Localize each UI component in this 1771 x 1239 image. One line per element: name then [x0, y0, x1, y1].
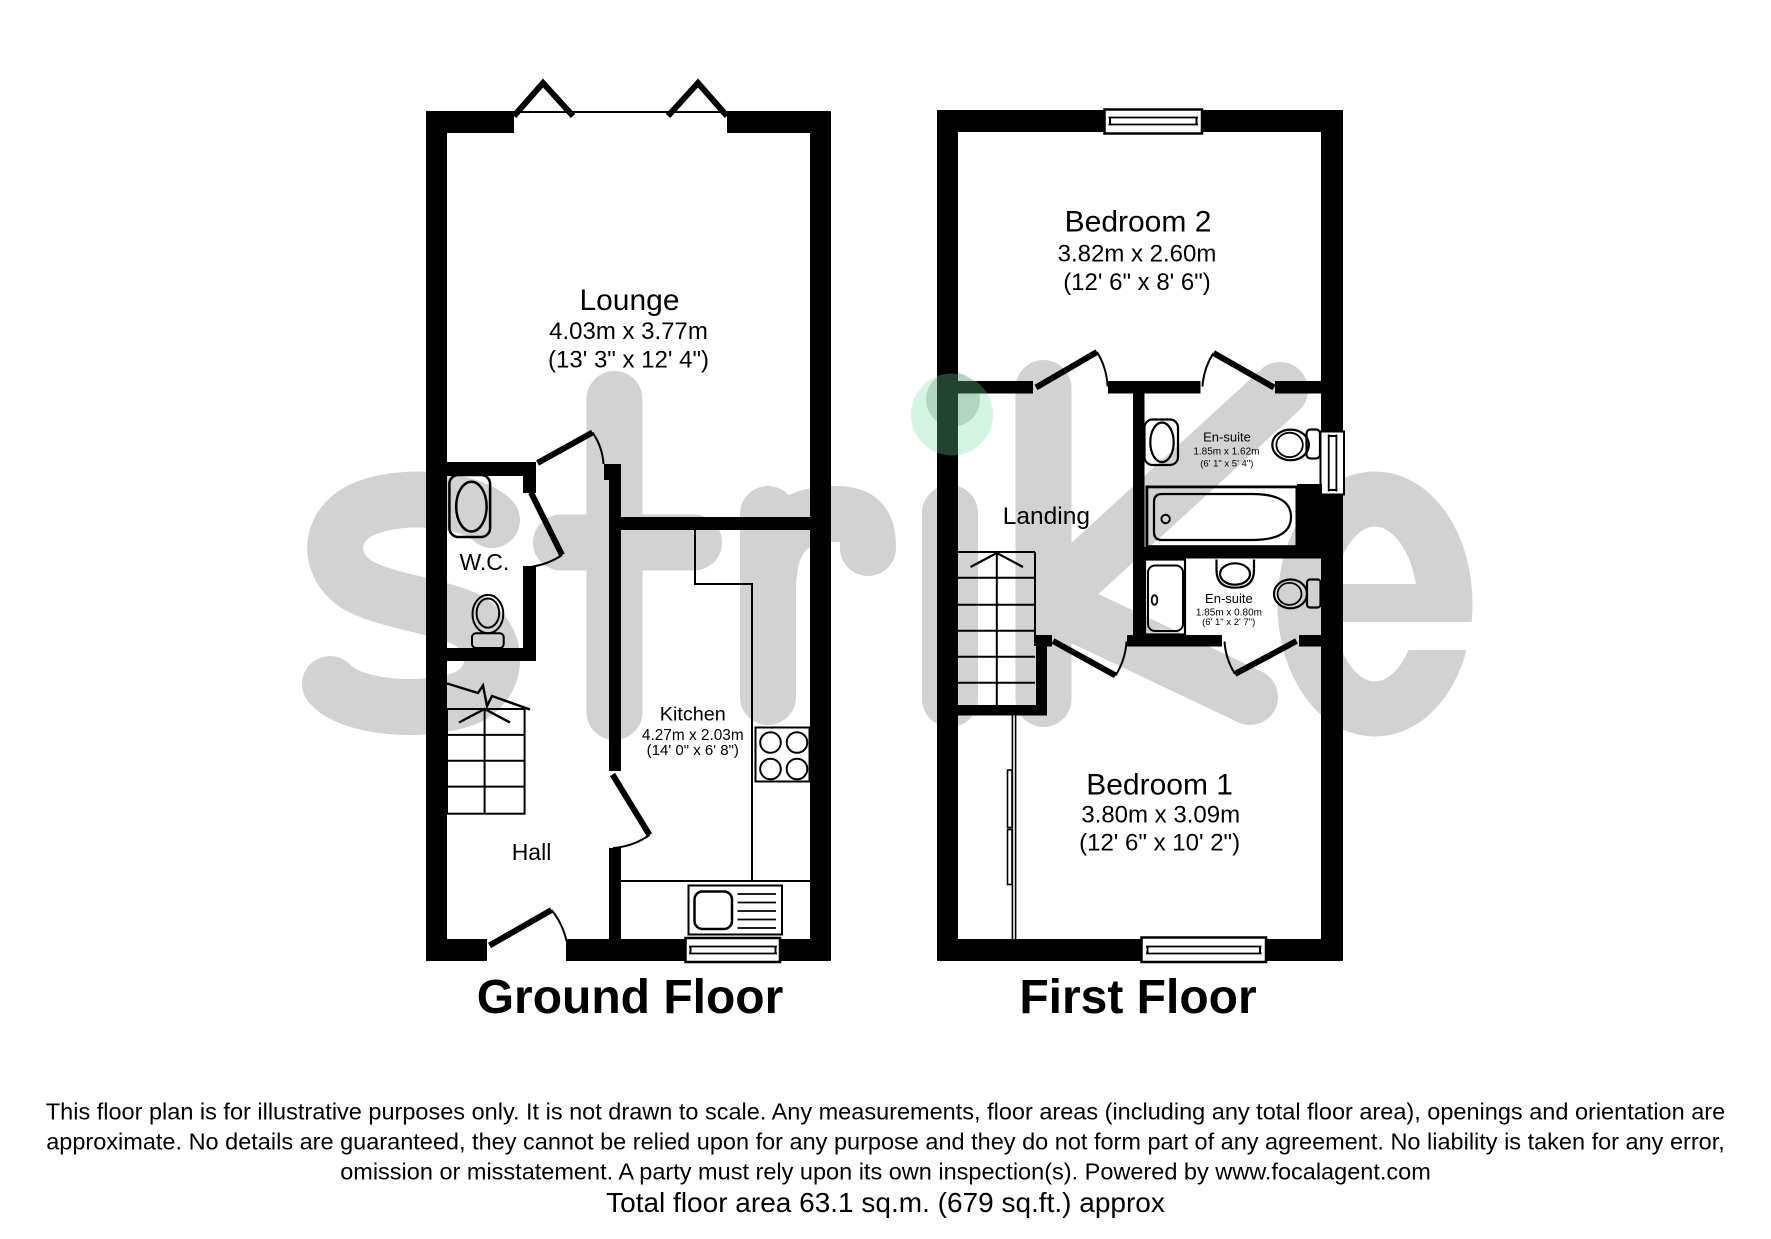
- svg-text:First Floor: First Floor: [1019, 971, 1256, 1024]
- svg-text:3.80m x 3.09m: 3.80m x 3.09m: [1081, 802, 1240, 829]
- svg-text:4.03m x 3.77m: 4.03m x 3.77m: [549, 318, 708, 345]
- svg-text:Lounge: Lounge: [579, 284, 679, 317]
- svg-text:Ground Floor: Ground Floor: [477, 971, 784, 1024]
- svg-text:(6' 1" x 2' 7"): (6' 1" x 2' 7"): [1202, 617, 1255, 628]
- svg-text:This floor plan is for illustr: This floor plan is for illustrative purp…: [46, 1099, 1725, 1125]
- svg-text:Total floor area 63.1 sq.m. (6: Total floor area 63.1 sq.m. (679 sq.ft.)…: [606, 1187, 1165, 1218]
- svg-text:(6' 1" x 5' 4"): (6' 1" x 5' 4"): [1200, 459, 1253, 470]
- svg-text:(13' 3" x 12' 4"): (13' 3" x 12' 4"): [548, 347, 709, 374]
- svg-text:approximate. No details are gu: approximate. No details are guaranteed, …: [46, 1129, 1725, 1155]
- svg-text:En-suite: En-suite: [1203, 430, 1251, 445]
- svg-text:En-suite: En-suite: [1205, 591, 1253, 606]
- svg-text:3.82m x 2.60m: 3.82m x 2.60m: [1058, 241, 1217, 268]
- svg-text:Hall: Hall: [512, 839, 552, 865]
- svg-text:Bedroom 1: Bedroom 1: [1086, 769, 1233, 802]
- svg-text:Kitchen: Kitchen: [660, 704, 726, 726]
- svg-text:(12' 6" x 10' 2"): (12' 6" x 10' 2"): [1079, 830, 1240, 857]
- svg-text:Bedroom 2: Bedroom 2: [1065, 206, 1212, 239]
- svg-text:omission or misstatement. A pa: omission or misstatement. A party must r…: [340, 1159, 1431, 1185]
- svg-text:1.85m x 1.62m: 1.85m x 1.62m: [1193, 447, 1259, 458]
- svg-text:(12' 6" x 8' 6"): (12' 6" x 8' 6"): [1063, 269, 1211, 296]
- svg-text:(14' 0" x 6' 8"): (14' 0" x 6' 8"): [647, 742, 739, 759]
- svg-text:Landing: Landing: [1003, 503, 1090, 530]
- svg-text:W.C.: W.C.: [459, 549, 509, 575]
